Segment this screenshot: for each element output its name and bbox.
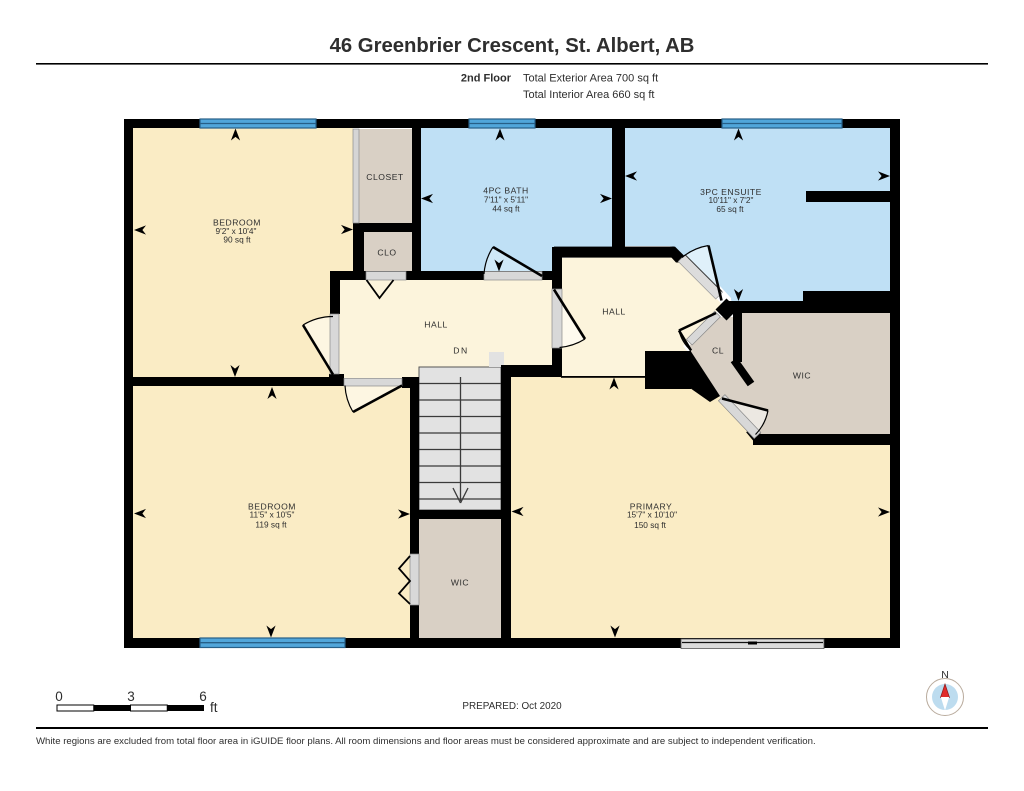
svg-text:HALL: HALL <box>424 320 448 330</box>
svg-text:WIC: WIC <box>451 578 469 588</box>
svg-text:11'5" x 10'5": 11'5" x 10'5" <box>250 510 295 520</box>
svg-text:2nd Floor: 2nd Floor <box>461 73 512 85</box>
svg-text:3: 3 <box>127 689 135 704</box>
svg-text:CLOSET: CLOSET <box>366 172 404 182</box>
svg-text:Total Exterior Area 700 sq ft: Total Exterior Area 700 sq ft <box>523 73 658 85</box>
svg-text:46 Greenbrier Crescent, St. Al: 46 Greenbrier Crescent, St. Albert, AB <box>330 35 695 57</box>
svg-text:150 sq ft: 150 sq ft <box>634 520 667 530</box>
svg-text:DN: DN <box>453 346 469 356</box>
svg-text:CL: CL <box>712 346 724 356</box>
svg-text:90 sq ft: 90 sq ft <box>223 235 251 245</box>
svg-text:PREPARED: Oct 2020: PREPARED: Oct 2020 <box>462 701 562 712</box>
svg-text:WIC: WIC <box>793 371 811 381</box>
svg-text:ft: ft <box>210 700 218 715</box>
svg-text:CLO: CLO <box>377 248 396 258</box>
svg-text:6: 6 <box>199 689 207 704</box>
svg-text:Total Interior Area 660 sq ft: Total Interior Area 660 sq ft <box>523 89 654 101</box>
svg-text:119 sq ft: 119 sq ft <box>255 520 287 530</box>
svg-text:44 sq ft: 44 sq ft <box>492 204 520 214</box>
svg-text:15'7" x 10'10": 15'7" x 10'10" <box>627 510 677 520</box>
svg-text:65 sq ft: 65 sq ft <box>716 204 744 214</box>
svg-text:White regions are excluded fro: White regions are excluded from total fl… <box>36 736 816 747</box>
svg-text:0: 0 <box>55 689 63 704</box>
svg-text:HALL: HALL <box>602 307 626 317</box>
